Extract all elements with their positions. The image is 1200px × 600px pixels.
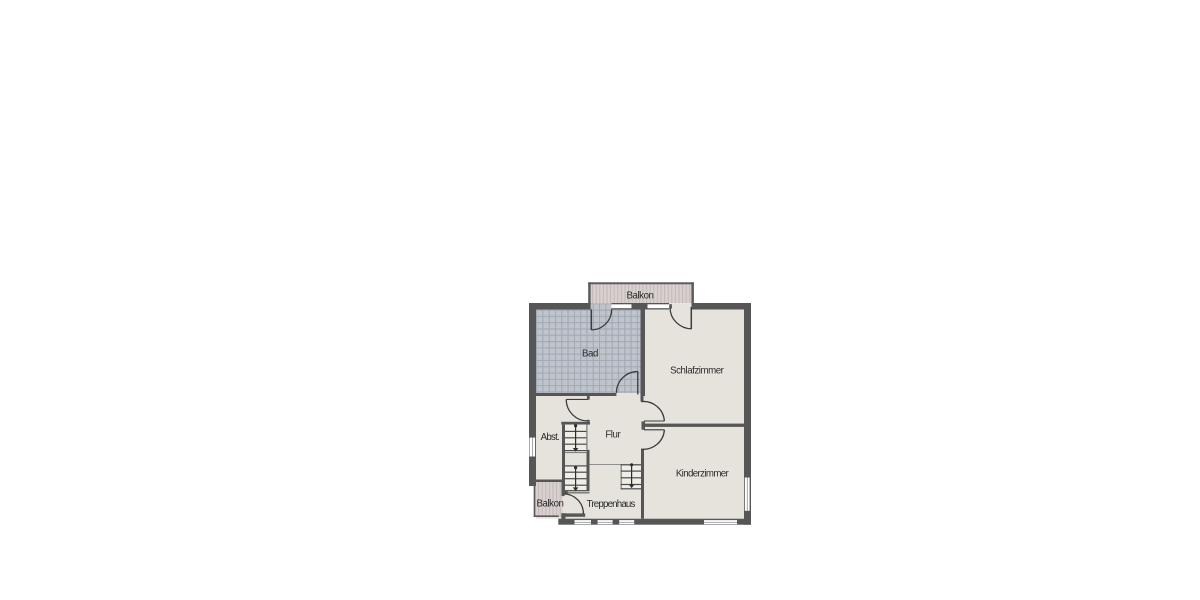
svg-text:Kinderzimmer: Kinderzimmer: [676, 469, 730, 480]
svg-text:Balkon: Balkon: [627, 291, 654, 302]
svg-text:Bad: Bad: [582, 349, 598, 360]
svg-text:Balkon: Balkon: [537, 498, 564, 509]
svg-text:Flur: Flur: [605, 429, 621, 440]
svg-text:Abst.: Abst.: [541, 432, 559, 443]
svg-text:Schlafzimmer: Schlafzimmer: [670, 366, 724, 377]
svg-text:Treppenhaus: Treppenhaus: [587, 499, 636, 510]
